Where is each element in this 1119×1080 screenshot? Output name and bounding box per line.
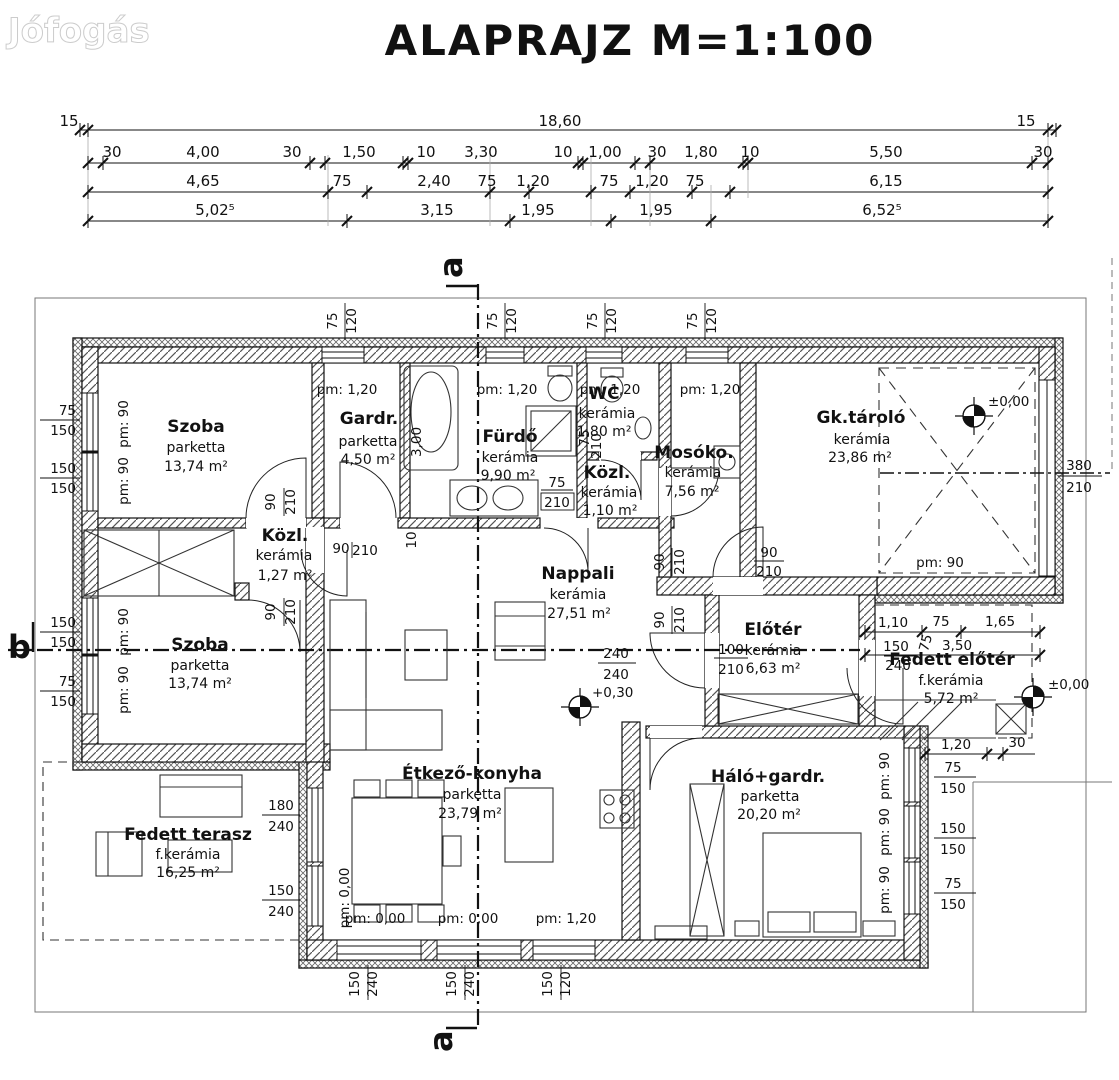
dimension-chains: 15 18,60 15 30 4,00 30 1,50 10 3,30 10 1… [59, 112, 1061, 228]
win-right2-a: 150 [940, 821, 966, 837]
door-nappali-c1: 90 [760, 545, 777, 561]
dim-r4-0: 5,02⁵ [195, 201, 234, 219]
dim-nappali-240b: 240 [603, 667, 629, 683]
dim-r2-4: 10 [416, 143, 435, 161]
room-szoba1-floor: parketta [166, 440, 225, 456]
door-eloter-b: 210 [718, 662, 744, 678]
room-mosoko-name: Mosóko. [654, 443, 733, 463]
door-szoba2-a: 90 [263, 603, 279, 620]
pm-garage: pm: 90 [916, 555, 964, 571]
dim-r2-3: 1,50 [342, 143, 375, 161]
door-kozl1-a: 90 [332, 541, 349, 557]
door-furdo-b: 210 [544, 495, 570, 511]
wardrobe-halo [690, 784, 724, 936]
watermark: Jófogás [6, 11, 150, 51]
dim-overall: 18,60 [539, 112, 582, 130]
win-left3-a: 150 [50, 615, 76, 631]
win-bot1-a: 150 [347, 971, 363, 997]
room-kozl1-area: 1,27 m² [258, 568, 313, 584]
dim-bath-length: 3,00 [409, 427, 425, 457]
section-marker-a-top: a [432, 256, 470, 278]
win-top3-b: 120 [604, 308, 620, 334]
room-nappali-area: 27,51 m² [547, 606, 611, 622]
room-etkezo-area: 23,79 m² [438, 806, 502, 822]
win-top1-b: 120 [344, 308, 360, 334]
room-mosoko-area: 7,56 m² [665, 484, 720, 500]
win-left1-a: 75 [59, 403, 76, 419]
pm-bottom-3: pm: 1,20 [536, 911, 597, 927]
room-gktarolo-area: 23,86 m² [828, 450, 892, 466]
pm-bottom-2: pm: 0,00 [438, 911, 499, 927]
room-kozl2-floor: kerámia [581, 485, 638, 501]
section-marker-b: b [8, 628, 31, 666]
shoe-cabinet [718, 694, 858, 724]
door-nappali-a2: 210 [672, 549, 688, 575]
win-top3-a: 75 [585, 312, 601, 329]
room-terasz-name: Fedett terasz [124, 825, 252, 845]
door-nappali-a1: 90 [652, 553, 668, 570]
win-left1-b: 150 [50, 423, 76, 439]
garage-door-b: 210 [1066, 480, 1092, 496]
room-fedett-eloter-floor: f.kerámia [918, 673, 983, 689]
win-bot1-b: 240 [365, 971, 381, 997]
door-nappali-c2: 210 [756, 564, 782, 580]
room-terasz-floor: f.kerámia [155, 847, 220, 863]
room-halo-floor: parketta [740, 789, 799, 805]
level-porch: ±0,00 [1048, 677, 1089, 693]
dim-r2-8: 30 [647, 143, 666, 161]
dim-r2-11: 5,50 [869, 143, 902, 161]
room-szoba2-floor: parketta [170, 658, 229, 674]
sinks-furdo [450, 480, 538, 516]
win-right1-b: 150 [940, 781, 966, 797]
dim-r3-3: 75 [477, 172, 496, 190]
dim-r3-5: 75 [599, 172, 618, 190]
dim-overall-left: 15 [59, 112, 78, 130]
bed [655, 833, 895, 939]
win-right2-b: 150 [940, 842, 966, 858]
room-etkezo-floor: parketta [442, 787, 501, 803]
win-top4-b: 120 [704, 308, 720, 334]
win-left3-b: 150 [50, 635, 76, 651]
dim-r2-2: 30 [282, 143, 301, 161]
pm-mosoko: pm: 1,20 [680, 382, 741, 398]
toilet-furdo [548, 366, 572, 401]
room-kozl1-name: Közl. [262, 526, 309, 546]
wardrobe-szoba [84, 530, 234, 596]
dim-r3-2: 2,40 [417, 172, 450, 190]
room-szoba2-area: 13,74 m² [168, 676, 232, 692]
dim-r2-10: 10 [740, 143, 759, 161]
terasz-dim1-a: 180 [268, 798, 294, 814]
win-bot2-a: 150 [444, 971, 460, 997]
pm-wc: pm: 1,20 [580, 382, 641, 398]
room-gardr-name: Gardr. [340, 409, 398, 429]
win-right1-a: 75 [944, 760, 961, 776]
tv-cabinet [495, 602, 545, 660]
door-furdo-a: 75 [548, 475, 565, 491]
terasz-dim2-b: 240 [268, 904, 294, 920]
porch-dim-2: 75 [932, 614, 949, 630]
pm-left-3: pm: 90 [116, 608, 132, 656]
room-eloter-floor: kerámia [745, 643, 802, 659]
dim-r3-0: 4,65 [186, 172, 219, 190]
room-gktarolo-name: Gk.tároló [817, 408, 906, 428]
room-fedett-eloter-area: 5,72 m² [924, 691, 979, 707]
dim-r4-3: 1,95 [639, 201, 672, 219]
entry-dim-a: 1,20 [941, 737, 971, 753]
room-nappali-name: Nappali [541, 564, 614, 584]
dim-overall-right: 15 [1016, 112, 1035, 130]
win-right3-a: 75 [944, 876, 961, 892]
door-kozl1-b: 210 [352, 543, 378, 559]
win-top2-a: 75 [485, 312, 501, 329]
win-left2-b: 150 [50, 481, 76, 497]
dim-small-10: 10 [404, 531, 420, 548]
door-szoba2-b: 210 [283, 599, 299, 625]
pm-halo-2: pm: 90 [877, 808, 893, 856]
dim-r3-4: 1,20 [516, 172, 549, 190]
porch-dim-width: 3,50 [942, 638, 972, 654]
pm-gardr: pm: 1,20 [317, 382, 378, 398]
door-eloter-a: 100 [718, 642, 744, 658]
dim-nappali-240a: 240 [603, 646, 629, 662]
dim-r2-1: 4,00 [186, 143, 219, 161]
dim-r3-7: 75 [685, 172, 704, 190]
door-nappali-b1: 90 [652, 611, 668, 628]
room-kozl2-name: Közl. [584, 463, 631, 483]
room-gardr-area: 4,50 m² [341, 452, 396, 468]
dim-r2-0: 30 [102, 143, 121, 161]
win-left2-a: 150 [50, 461, 76, 477]
pm-bottom-1: pm: 0,00 [345, 911, 406, 927]
pm-left-1: pm: 90 [116, 400, 132, 448]
entry-dim-b: 30 [1008, 735, 1025, 751]
door-wc-b: 210 [589, 433, 605, 459]
room-wc-floor: kerámia [579, 406, 636, 422]
floor-plan-canvas: 15 18,60 15 30 4,00 30 1,50 10 3,30 10 1… [0, 0, 1119, 1080]
room-szoba1-name: Szoba [167, 417, 224, 437]
win-bot2-b: 240 [462, 971, 478, 997]
dim-r4-1: 3,15 [420, 201, 453, 219]
room-nappali-floor: kerámia [550, 587, 607, 603]
level-nappali: +0,30 [592, 685, 633, 701]
porch-dim-3: 1,65 [985, 614, 1015, 630]
section-marker-a-bottom: a [422, 1030, 460, 1052]
room-szoba1-area: 13,74 m² [164, 459, 228, 475]
room-gktarolo-floor: kerámia [834, 432, 891, 448]
room-gardr-floor: parketta [338, 434, 397, 450]
pm-halo-1: pm: 90 [877, 752, 893, 800]
terasz-dim2-a: 150 [268, 883, 294, 899]
room-eloter-name: Előtér [744, 620, 802, 640]
sofa [330, 600, 442, 750]
room-halo-area: 20,20 m² [737, 807, 801, 823]
win-left4-a: 75 [59, 674, 76, 690]
room-furdo-floor: kerámia [482, 450, 539, 466]
win-bot3-a: 150 [540, 971, 556, 997]
dim-r4-2: 1,95 [521, 201, 554, 219]
level-garage: ±0,00 [988, 394, 1029, 410]
dim-r3-8: 6,15 [869, 172, 902, 190]
room-furdo-area: 9,90 m² [481, 468, 536, 484]
pm-left-2: pm: 90 [116, 457, 132, 505]
dim-r2-7: 1,00 [588, 143, 621, 161]
room-mosoko-floor: kerámia [665, 465, 722, 481]
win-top1-a: 75 [325, 312, 341, 329]
door-nappali-b2: 210 [672, 607, 688, 633]
room-furdo-name: Fürdő [482, 427, 537, 447]
pm-left-4: pm: 90 [116, 666, 132, 714]
win-top4-a: 75 [685, 312, 701, 329]
dim-r2-6: 10 [553, 143, 572, 161]
porch-pair-a: 150 [883, 639, 909, 655]
room-terasz-area: 16,25 m² [156, 865, 220, 881]
room-eloter-area: 6,63 m² [746, 661, 801, 677]
win-bot3-b: 120 [558, 971, 574, 997]
door-szoba1-a: 90 [263, 493, 279, 510]
porch-dim-1: 1,10 [878, 615, 908, 631]
room-kozl1-floor: kerámia [256, 548, 313, 564]
dim-r2-5: 3,30 [464, 143, 497, 161]
door-szoba1-b: 210 [283, 489, 299, 515]
room-kozl2-area: 1,10 m² [583, 503, 638, 519]
dim-r3-1: 75 [332, 172, 351, 190]
pm-halo-3: pm: 90 [877, 866, 893, 914]
dim-r3-6: 1,20 [635, 172, 668, 190]
win-right3-b: 150 [940, 897, 966, 913]
porch-pair-b: 240 [885, 658, 911, 674]
room-halo-name: Háló+gardr. [711, 767, 825, 787]
room-szoba2-name: Szoba [171, 635, 228, 655]
room-etkezo-name: Étkező-konyha [402, 762, 542, 784]
pm-furdo: pm: 1,20 [477, 382, 538, 398]
page-title: ALAPRAJZ M=1:100 [385, 16, 876, 65]
dim-r2-9: 1,80 [684, 143, 717, 161]
kitchen-island [505, 788, 553, 862]
win-left4-b: 150 [50, 694, 76, 710]
win-top2-b: 120 [504, 308, 520, 334]
floor-plan-drawing: 15 18,60 15 30 4,00 30 1,50 10 3,30 10 1… [0, 0, 1119, 1080]
coffee-table [405, 630, 447, 680]
dim-r2-12: 30 [1033, 143, 1052, 161]
dim-r4-4: 6,52⁵ [862, 201, 901, 219]
terasz-dim1-b: 240 [268, 819, 294, 835]
garage-door-a: 380 [1066, 458, 1092, 474]
porch-column [996, 704, 1026, 734]
